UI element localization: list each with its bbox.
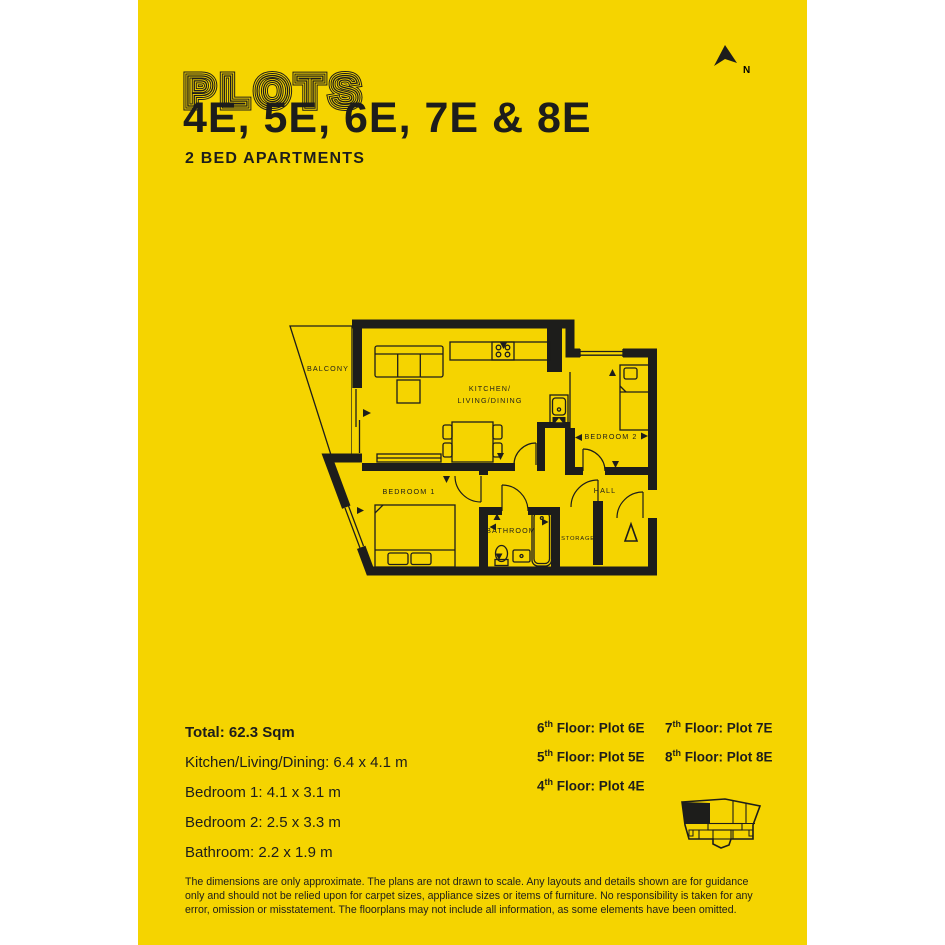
label-kitchen-line1: KITCHEN/: [469, 384, 511, 393]
tv-unit: [377, 454, 441, 462]
bedroom1-bed: [375, 505, 455, 567]
dimension-item: Bathroom: 2.2 x 1.9 m: [185, 844, 408, 861]
plot-location-highlight: [682, 802, 710, 824]
balcony-outline: [290, 326, 352, 455]
total-area: Total: 62.3 Sqm: [185, 724, 408, 741]
basin: [513, 550, 530, 562]
kitchen-counter: [450, 342, 550, 360]
bedroom1-window: [342, 505, 368, 549]
bathtub: [532, 510, 552, 566]
floorplan-diagram: BALCONY KITCHEN/ LIVING/DINING BEDROOM 2…: [278, 310, 690, 610]
plot-numbers-heading: 4E, 5E, 6E, 7E & 8E: [183, 94, 592, 143]
dimensions-list: Total: 62.3 Sqm Kitchen/Living/Dining: 6…: [185, 724, 408, 874]
north-label: N: [743, 65, 750, 76]
label-bathroom: BATHROOM: [486, 526, 536, 535]
label-kitchen-line2: LIVING/DINING: [457, 396, 522, 405]
apartment-type-subtitle: 2 BED APARTMENTS: [185, 150, 365, 168]
disclaimer-text: The dimensions are only approximate. The…: [185, 875, 757, 918]
side-table: [397, 380, 420, 403]
balcony-sliding-door: [352, 388, 363, 454]
entrance-opening: [648, 490, 658, 518]
north-arrow-icon: N: [713, 44, 759, 80]
sofa: [375, 346, 443, 377]
entrance-triangle: [625, 524, 637, 541]
brochure-page: PLOTS PLOTS PLOTS PLOTS PLOTS 4E, 5E, 6E…: [138, 0, 807, 945]
dining-table: [443, 422, 502, 462]
dimension-item: Kitchen/Living/Dining: 6.4 x 4.1 m: [185, 754, 408, 771]
floor-item: 8th Floor: Plot 8E: [665, 748, 773, 764]
door-bedroom2: [583, 449, 605, 471]
floor-item: 4th Floor: Plot 4E: [537, 777, 645, 793]
label-balcony: BALCONY: [307, 364, 349, 373]
dimension-item: Bedroom 1: 4.1 x 3.1 m: [185, 784, 408, 801]
floor-item: 6th Floor: Plot 6E: [537, 719, 645, 735]
door-bedroom1: [455, 476, 481, 502]
label-bedroom1: BEDROOM 1: [382, 487, 435, 496]
label-storage: STORAGE: [561, 536, 595, 542]
floor-item: 5th Floor: Plot 5E: [537, 748, 645, 764]
kitchen-sink: [550, 395, 568, 425]
dimension-item: Bedroom 2: 2.5 x 3.3 m: [185, 814, 408, 831]
building-footprint-icon: [675, 797, 765, 849]
bedroom2-window: [580, 347, 623, 358]
label-hall: HALL: [594, 486, 616, 495]
label-bedroom2: BEDROOM 2: [584, 432, 637, 441]
floor-list-column1: 6th Floor: Plot 6E 5th Floor: Plot 5E 4t…: [537, 719, 645, 806]
door-bathroom: [502, 485, 528, 511]
floor-item: 7th Floor: Plot 7E: [665, 719, 773, 735]
bedroom2-bed: [620, 365, 650, 430]
door-entrance: [617, 492, 643, 518]
floor-list-column2: 7th Floor: Plot 7E 8th Floor: Plot 8E: [665, 719, 773, 777]
door-living: [514, 443, 536, 465]
